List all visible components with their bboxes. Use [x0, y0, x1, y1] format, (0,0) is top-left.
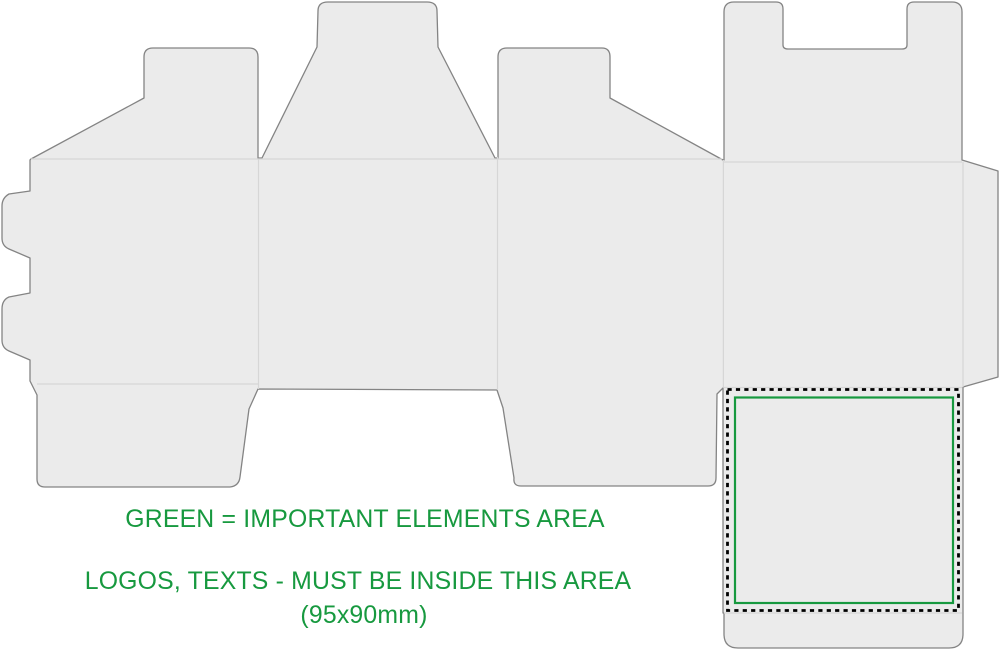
caption-line-1: GREEN = IMPORTANT ELEMENTS AREA [125, 506, 605, 533]
dieline-outline [2, 2, 998, 648]
dieline-canvas: GREEN = IMPORTANT ELEMENTS AREA LOGOS, T… [0, 0, 1000, 651]
caption-line-2: LOGOS, TEXTS - MUST BE INSIDE THIS AREA [85, 568, 632, 595]
box-dieline-svg: GREEN = IMPORTANT ELEMENTS AREA LOGOS, T… [0, 0, 1000, 651]
caption: GREEN = IMPORTANT ELEMENTS AREA LOGOS, T… [85, 506, 632, 629]
caption-line-3: (95x90mm) [300, 602, 427, 629]
